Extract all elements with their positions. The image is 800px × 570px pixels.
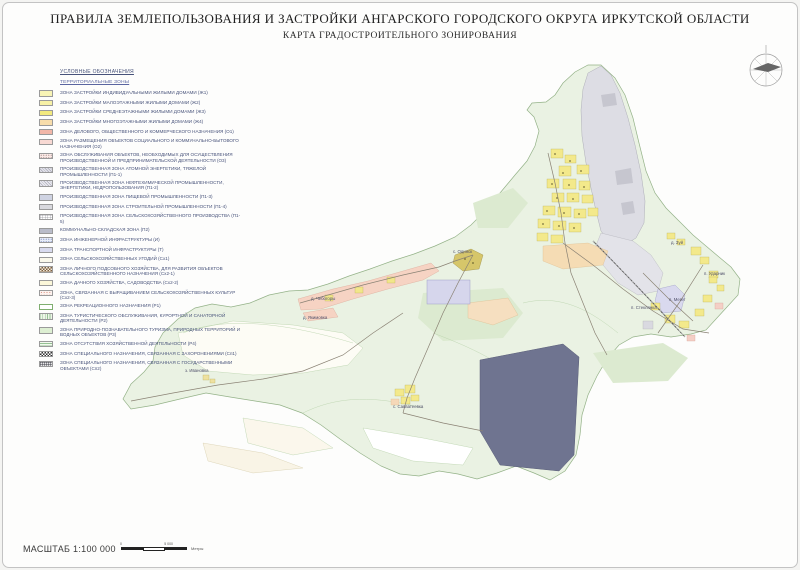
map-label: п. Мегет bbox=[669, 297, 685, 302]
map-sheet: ПРАВИЛА ЗЕМЛЕПОЛЬЗОВАНИЯ И ЗАСТРОЙКИ АНГ… bbox=[2, 2, 798, 568]
legend-item: КОММУНАЛЬНО-СКЛАДСКАЯ ЗОНА (П2) bbox=[39, 227, 264, 234]
legend-item-label: ЗОНА ЗАСТРОЙКИ МНОГОЭТАЖНЫМИ ЖИЛЫМИ ДОМА… bbox=[60, 119, 203, 124]
legend-item-label: ЗОНА РАЗМЕЩЕНИЯ ОБЪЕКТОВ СОЦИАЛЬНОГО И К… bbox=[60, 138, 242, 149]
page-title: ПРАВИЛА ЗЕМЛЕПОЛЬЗОВАНИЯ И ЗАСТРОЙКИ АНГ… bbox=[3, 11, 797, 27]
legend-swatch bbox=[39, 214, 53, 220]
legend-swatch bbox=[39, 290, 53, 296]
legend-item: ЗОНА ДЕЛОВОГО, ОБЩЕСТВЕННОГО И КОММЕРЧЕС… bbox=[39, 129, 264, 136]
legend-item-label: ЗОНА ЗАСТРОЙКИ СРЕДНЕЭТАЖНЫМИ ЖИЛЫМИ ДОМ… bbox=[60, 109, 206, 114]
legend-heading: УСЛОВНЫЕ ОБОЗНАЧЕНИЯ bbox=[60, 69, 264, 75]
legend-swatch bbox=[39, 110, 53, 116]
legend-swatch bbox=[39, 257, 53, 263]
legend-item: ЗОНА ДАЧНОГО ХОЗЯЙСТВА, САДОВОДСТВА (Сх2… bbox=[39, 280, 264, 287]
legend-swatch bbox=[39, 247, 53, 253]
legend-item-label: ЗОНА СПЕЦИАЛЬНОГО НАЗНАЧЕНИЯ, СВЯЗАННАЯ … bbox=[60, 351, 237, 356]
scale-start: 0 bbox=[120, 542, 122, 546]
legend-item-label: ЗОНА ДЕЛОВОГО, ОБЩЕСТВЕННОГО И КОММЕРЧЕС… bbox=[60, 129, 234, 134]
legend-item: ЗОНА ЗАСТРОЙКИ ИНДИВИДУАЛЬНЫМИ ЖИЛЫМИ ДО… bbox=[39, 90, 264, 97]
legend-item: ПРОИЗВОДСТВЕННАЯ ЗОНА АТОМНОЙ ЭНЕРГЕТИКИ… bbox=[39, 166, 264, 177]
scale-segment bbox=[121, 547, 143, 550]
legend-item: ЗОНА ТРАНСПОРТНОЙ ИНФРАСТРУКТУРЫ (Т) bbox=[39, 247, 264, 254]
legend-item: ЗОНА РЕКРЕАЦИОННОГО НАЗНАЧЕНИЯ (Р1) bbox=[39, 303, 264, 310]
legend-item-label: ЗОНА ИНЖЕНЕРНОЙ ИНФРАСТРУКТУРЫ (И) bbox=[60, 237, 160, 242]
legend-swatch bbox=[39, 228, 53, 234]
legend-swatch bbox=[39, 341, 53, 347]
legend-swatch bbox=[39, 100, 53, 106]
map-label: д. Чебогоры bbox=[311, 296, 335, 301]
legend-item-label: ЗОНА ДАЧНОГО ХОЗЯЙСТВА, САДОВОДСТВА (Сх2… bbox=[60, 280, 178, 285]
map-label: д. Зуй bbox=[671, 240, 683, 245]
legend-item: ЗОНА ТУРИСТИЧЕСКОГО ОБСЛУЖИВАНИЯ, КУРОРТ… bbox=[39, 313, 264, 324]
special-zone-sp2 bbox=[480, 344, 579, 471]
legend-swatch bbox=[39, 153, 53, 159]
legend-item: ЗОНА ИНЖЕНЕРНОЙ ИНФРАСТРУКТУРЫ (И) bbox=[39, 237, 264, 244]
map-label: с. Савватеевка bbox=[393, 404, 423, 409]
legend-item: ПРОИЗВОДСТВЕННАЯ ЗОНА СЕЛЬСКОХОЗЯЙСТВЕНН… bbox=[39, 213, 264, 224]
legend-item-label: ЗОНА ОБСЛУЖИВАНИЯ ОБЪЕКТОВ, НЕОБХОДИМЫХ … bbox=[60, 152, 242, 163]
legend-item-label: ЗОНА ЛИЧНОГО ПОДСОБНОГО ХОЗЯЙСТВА, ДЛЯ Р… bbox=[60, 266, 242, 277]
legend-item-label: ЗОНА, СВЯЗАННАЯ С ВЫРАЩИВАНИЕМ СЕЛЬСКОХО… bbox=[60, 290, 242, 301]
map-label: п. Стеклянка bbox=[631, 305, 657, 310]
legend-item: ПРОИЗВОДСТВЕННАЯ ЗОНА СТРОИТЕЛЬНОЙ ПРОМЫ… bbox=[39, 204, 264, 211]
legend-item-label: ЗОНА ТУРИСТИЧЕСКОГО ОБСЛУЖИВАНИЯ, КУРОРТ… bbox=[60, 313, 242, 324]
map-subtitle: КАРТА ГРАДОСТРОИТЕЛЬНОГО ЗОНИРОВАНИЯ bbox=[3, 31, 797, 41]
legend-swatch bbox=[39, 167, 53, 173]
legend-item: ЗОНА, СВЯЗАННАЯ С ВЫРАЩИВАНИЕМ СЕЛЬСКОХО… bbox=[39, 290, 264, 301]
legend-swatch bbox=[39, 351, 53, 357]
legend-item: ЗОНА СПЕЦИАЛЬНОГО НАЗНАЧЕНИЯ, СВЯЗАННАЯ … bbox=[39, 351, 264, 358]
legend-item-label: ЗОНА РЕКРЕАЦИОННОГО НАЗНАЧЕНИЯ (Р1) bbox=[60, 303, 161, 308]
legend-item-label: ЗОНА СЕЛЬСКОХОЗЯЙСТВЕННЫХ УГОДИЙ (Сх1) bbox=[60, 256, 169, 261]
legend-items: ЗОНА ЗАСТРОЙКИ ИНДИВИДУАЛЬНЫМИ ЖИЛЫМИ ДО… bbox=[39, 90, 264, 371]
legend: УСЛОВНЫЕ ОБОЗНАЧЕНИЯ ТЕРРИТОРИАЛЬНЫЕ ЗОН… bbox=[39, 69, 264, 374]
legend-item: ЗОНА ПРИРОДНО-ПОЗНАВАТЕЛЬНОГО ТУРИЗМА, П… bbox=[39, 327, 264, 338]
legend-subheading: ТЕРРИТОРИАЛЬНЫЕ ЗОНЫ bbox=[60, 80, 264, 85]
legend-item-label: ПРОИЗВОДСТВЕННАЯ ЗОНА ПИЩЕВОЙ ПРОМЫШЛЕНН… bbox=[60, 194, 213, 199]
scale-segment bbox=[165, 547, 187, 550]
legend-item: ЗОНА СПЕЦИАЛЬНОГО НАЗНАЧЕНИЯ, СВЯЗАННАЯ … bbox=[39, 360, 264, 371]
legend-item-label: ЗОНА СПЕЦИАЛЬНОГО НАЗНАЧЕНИЯ, СВЯЗАННАЯ … bbox=[60, 360, 242, 371]
legend-item: ЗОНА ЗАСТРОЙКИ МАЛОЭТАЖНЫМИ ЖИЛЫМИ ДОМАМ… bbox=[39, 100, 264, 107]
legend-item: ЗОНА СЕЛЬСКОХОЗЯЙСТВЕННЫХ УГОДИЙ (Сх1) bbox=[39, 256, 264, 263]
legend-item: ПРОИЗВОДСТВЕННАЯ ЗОНА ПИЩЕВОЙ ПРОМЫШЛЕНН… bbox=[39, 194, 264, 201]
legend-item-label: ЗОНА ЗАСТРОЙКИ МАЛОЭТАЖНЫМИ ЖИЛЫМИ ДОМАМ… bbox=[60, 100, 200, 105]
legend-item: ЗОНА ОБСЛУЖИВАНИЯ ОБЪЕКТОВ, НЕОБХОДИМЫХ … bbox=[39, 152, 264, 163]
legend-swatch bbox=[39, 237, 53, 243]
legend-swatch bbox=[39, 90, 53, 96]
legend-item-label: ЗОНА ПРИРОДНО-ПОЗНАВАТЕЛЬНОГО ТУРИЗМА, П… bbox=[60, 327, 242, 338]
legend-item-label: ЗОНА ОТСУТСТВИЯ ХОЗЯЙСТВЕННОЙ ДЕЯТЕЛЬНОС… bbox=[60, 341, 196, 346]
legend-item: ЗОНА ОТСУТСТВИЯ ХОЗЯЙСТВЕННОЙ ДЕЯТЕЛЬНОС… bbox=[39, 341, 264, 348]
legend-swatch bbox=[39, 139, 53, 145]
legend-item-label: ЗОНА ЗАСТРОЙКИ ИНДИВИДУАЛЬНЫМИ ЖИЛЫМИ ДО… bbox=[60, 90, 208, 95]
legend-swatch bbox=[39, 304, 53, 310]
legend-swatch bbox=[39, 327, 53, 333]
legend-item-label: ПРОИЗВОДСТВЕННАЯ ЗОНА НЕФТЕХИМИЧЕСКОЙ ПР… bbox=[60, 180, 242, 191]
map-label: с. Одинск bbox=[453, 249, 472, 254]
legend-swatch bbox=[39, 266, 53, 272]
legend-swatch bbox=[39, 280, 53, 286]
legend-swatch bbox=[39, 129, 53, 135]
scale-end: 5 000 bbox=[164, 542, 173, 546]
legend-swatch bbox=[39, 313, 53, 319]
legend-swatch bbox=[39, 194, 53, 200]
legend-item-label: ЗОНА ТРАНСПОРТНОЙ ИНФРАСТРУКТУРЫ (Т) bbox=[60, 247, 164, 252]
legend-item-label: КОММУНАЛЬНО-СКЛАДСКАЯ ЗОНА (П2) bbox=[60, 227, 150, 232]
map-label: д. Якимовка bbox=[303, 315, 327, 320]
legend-swatch bbox=[39, 119, 53, 125]
scale-segment bbox=[143, 547, 165, 551]
scale-units: Метры bbox=[191, 546, 203, 551]
map-label: п. Ударник bbox=[704, 271, 725, 276]
legend-swatch bbox=[39, 180, 53, 186]
legend-item: ЗОНА РАЗМЕЩЕНИЯ ОБЪЕКТОВ СОЦИАЛЬНОГО И К… bbox=[39, 138, 264, 149]
legend-item: ЗОНА ЗАСТРОЙКИ СРЕДНЕЭТАЖНЫМИ ЖИЛЫМИ ДОМ… bbox=[39, 109, 264, 116]
legend-item-label: ПРОИЗВОДСТВЕННАЯ ЗОНА СТРОИТЕЛЬНОЙ ПРОМЫ… bbox=[60, 204, 227, 209]
scale-label: МАСШТАБ 1:100 000 bbox=[23, 544, 116, 554]
legend-swatch bbox=[39, 204, 53, 210]
legend-item-label: ПРОИЗВОДСТВЕННАЯ ЗОНА СЕЛЬСКОХОЗЯЙСТВЕНН… bbox=[60, 213, 242, 224]
legend-item: ЗОНА ЗАСТРОЙКИ МНОГОЭТАЖНЫМИ ЖИЛЫМИ ДОМА… bbox=[39, 119, 264, 126]
legend-item: ПРОИЗВОДСТВЕННАЯ ЗОНА НЕФТЕХИМИЧЕСКОЙ ПР… bbox=[39, 180, 264, 191]
legend-item: ЗОНА ЛИЧНОГО ПОДСОБНОГО ХОЗЯЙСТВА, ДЛЯ Р… bbox=[39, 266, 264, 277]
legend-swatch bbox=[39, 361, 53, 367]
legend-item-label: ПРОИЗВОДСТВЕННАЯ ЗОНА АТОМНОЙ ЭНЕРГЕТИКИ… bbox=[60, 166, 242, 177]
scale-bar: 0 5 000 Метры bbox=[121, 546, 203, 551]
compass-rose-icon bbox=[743, 43, 789, 93]
